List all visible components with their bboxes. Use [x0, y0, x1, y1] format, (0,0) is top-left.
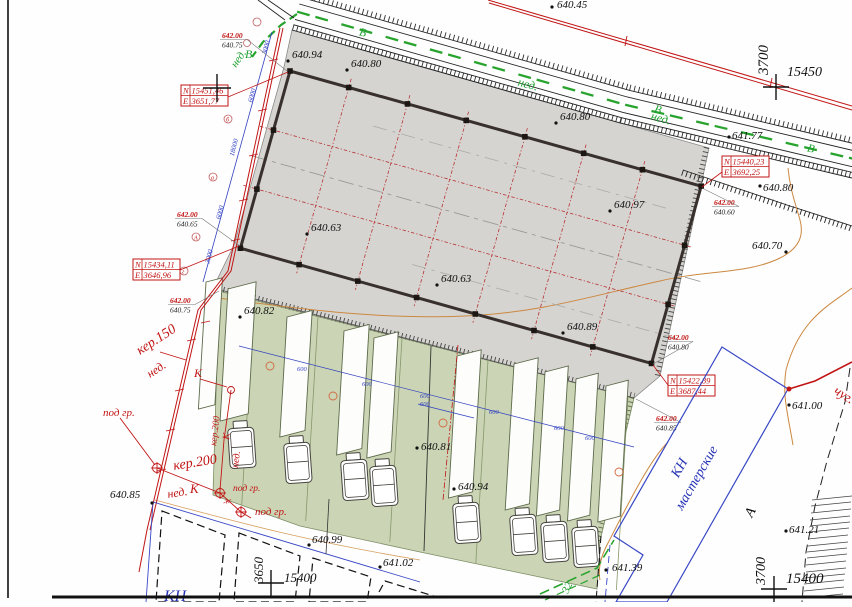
svg-text:642.00: 642.00	[222, 31, 243, 40]
svg-text:15440,23: 15440,23	[733, 157, 765, 167]
svg-text:640.63: 640.63	[441, 273, 472, 285]
svg-text:E: E	[669, 386, 676, 396]
svg-text:640.80: 640.80	[668, 343, 689, 352]
svg-text:600: 600	[362, 381, 373, 388]
svg-text:15434,11: 15434,11	[144, 260, 175, 270]
svg-text:642.00: 642.00	[177, 210, 198, 219]
svg-text:3646,96: 3646,96	[143, 270, 172, 280]
svg-text:640.80: 640.80	[560, 111, 591, 123]
svg-text:640.45: 640.45	[557, 0, 588, 11]
svg-text:600: 600	[297, 366, 308, 373]
svg-text:3651,77: 3651,77	[191, 96, 220, 106]
svg-text:под гр.: под гр.	[255, 506, 287, 518]
svg-text:600: 600	[420, 401, 431, 408]
svg-text:3650: 3650	[251, 557, 266, 585]
svg-text:641.77: 641.77	[732, 130, 763, 142]
svg-text:640.99: 640.99	[312, 534, 343, 546]
svg-text:641.02: 641.02	[383, 557, 414, 569]
svg-text:600: 600	[554, 425, 565, 432]
svg-text:а: а	[211, 176, 214, 182]
svg-text:под гр.: под гр.	[103, 407, 135, 419]
svg-text:640.89: 640.89	[567, 321, 598, 333]
svg-text:К: К	[193, 366, 203, 380]
svg-text:15422,89: 15422,89	[679, 376, 712, 386]
svg-text:15450: 15450	[787, 65, 822, 80]
svg-text:640.82: 640.82	[244, 305, 275, 317]
svg-text:15451,46: 15451,46	[192, 86, 225, 96]
svg-text:642.00: 642.00	[170, 296, 191, 305]
svg-text:640.63: 640.63	[311, 222, 342, 234]
svg-text:600: 600	[585, 435, 596, 442]
svg-text:3692,25: 3692,25	[732, 167, 761, 177]
svg-text:3700: 3700	[756, 45, 772, 77]
svg-text:E: E	[723, 167, 730, 177]
svg-text:нед.: нед.	[230, 450, 243, 468]
svg-text:15400: 15400	[284, 570, 317, 585]
svg-text:641.21: 641.21	[789, 524, 819, 536]
svg-text:640.65: 640.65	[177, 220, 198, 229]
svg-text:642.00: 642.00	[668, 333, 689, 342]
svg-text:3687,44: 3687,44	[678, 386, 707, 396]
svg-text:15400: 15400	[786, 571, 824, 587]
svg-text:640.97: 640.97	[614, 199, 645, 211]
svg-text:640.85: 640.85	[110, 489, 141, 501]
svg-text:640.75: 640.75	[170, 306, 191, 315]
svg-text:600: 600	[420, 393, 431, 400]
svg-text:E: E	[134, 270, 141, 280]
svg-text:640.94: 640.94	[458, 481, 489, 493]
svg-text:640.60: 640.60	[714, 208, 735, 217]
svg-text:640.81: 640.81	[421, 441, 451, 453]
svg-text:640.80: 640.80	[763, 182, 794, 194]
svg-text:641.39: 641.39	[612, 562, 643, 574]
svg-text:641.00: 641.00	[792, 400, 823, 412]
svg-text:E: E	[182, 96, 189, 106]
svg-text:640.75: 640.75	[222, 41, 243, 50]
svg-text:КН: КН	[163, 588, 188, 602]
svg-text:640.80: 640.80	[351, 58, 382, 70]
svg-text:600: 600	[489, 409, 500, 416]
svg-text:640.70: 640.70	[752, 240, 783, 252]
svg-text:под гр.: под гр.	[233, 483, 260, 494]
svg-text:640.94: 640.94	[292, 49, 323, 61]
svg-text:3700: 3700	[754, 557, 769, 586]
svg-text:А: А	[193, 236, 198, 242]
